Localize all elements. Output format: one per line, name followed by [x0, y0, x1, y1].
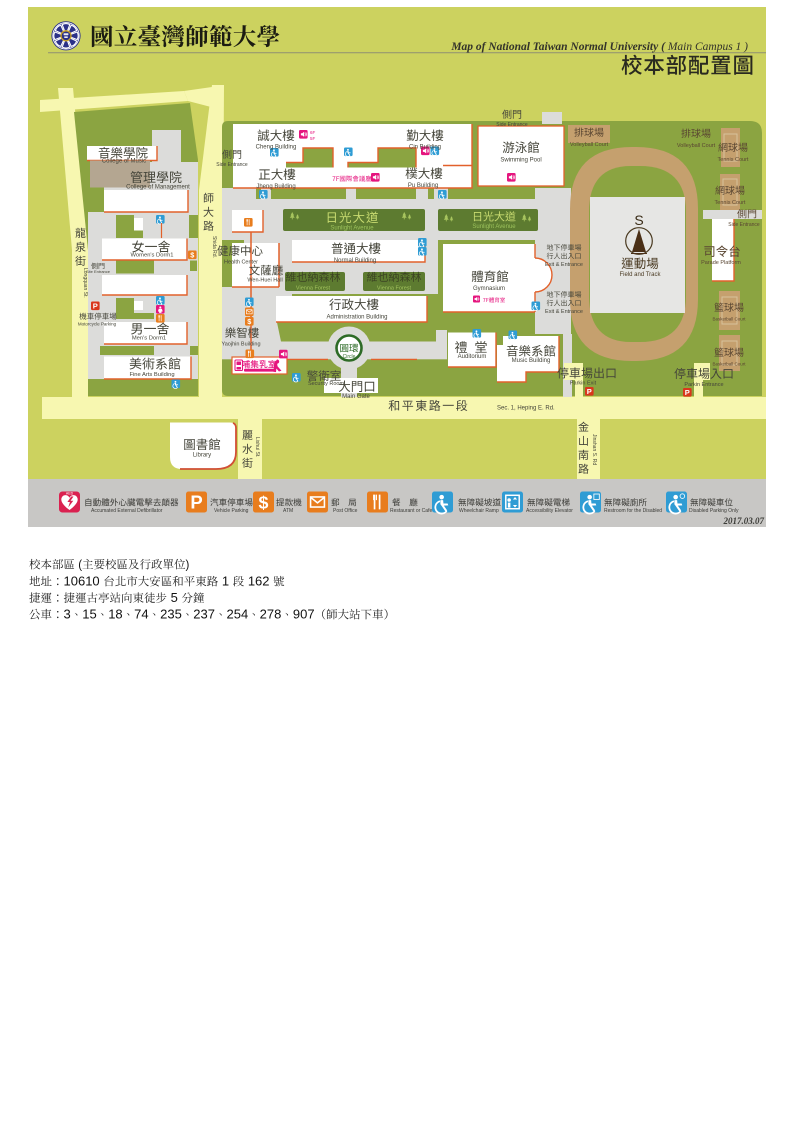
svg-text:): ) — [186, 560, 190, 572]
svg-text:254: 254 — [226, 607, 248, 622]
svg-text:College of Management: College of Management — [126, 185, 190, 191]
svg-text:Lishui St.: Lishui St. — [254, 437, 260, 458]
svg-text:Restroom for the Disabled: Restroom for the Disabled — [604, 508, 662, 514]
svg-text:Sec. 1, Heping E. Rd.: Sec. 1, Heping E. Rd. — [497, 406, 555, 412]
svg-text:Gymnasium: Gymnasium — [473, 286, 505, 292]
svg-text:Jinshan S. Rd: Jinshan S. Rd — [591, 434, 597, 465]
svg-text:Music Building: Music Building — [512, 358, 551, 364]
svg-text:Tennis Court: Tennis Court — [718, 157, 749, 163]
svg-text:Restaurant or Cafe: Restaurant or Cafe — [390, 508, 432, 514]
svg-text:Basketball Court: Basketball Court — [712, 317, 746, 322]
svg-text:Map of National Taiwan Normal: Map of National Taiwan Normal University… — [450, 41, 748, 53]
svg-text:Sunlight Avenue: Sunlight Avenue — [330, 226, 374, 232]
svg-text:Volleyball Court: Volleyball Court — [570, 142, 609, 148]
svg-text:Disabled Parking Only: Disabled Parking Only — [689, 508, 739, 514]
svg-text:5F: 5F — [310, 136, 316, 141]
svg-text:AED: AED — [66, 492, 74, 496]
svg-text:Wheelchair Ramp: Wheelchair Ramp — [459, 508, 499, 514]
svg-text:Post Office: Post Office — [333, 508, 358, 514]
svg-text:Security Room: Security Room — [308, 381, 344, 387]
svg-text:Exit & Entrance: Exit & Entrance — [545, 309, 583, 315]
svg-text:Circle: Circle — [343, 354, 356, 360]
svg-text:Women's Dorm1: Women's Dorm1 — [131, 253, 174, 259]
svg-text:5: 5 — [171, 590, 178, 605]
svg-text:2017.03.07: 2017.03.07 — [723, 516, 765, 526]
svg-text:Pu Building: Pu Building — [408, 183, 438, 189]
svg-text:Shida Rd.: Shida Rd. — [211, 236, 217, 258]
svg-text:Men's Dorm1: Men's Dorm1 — [132, 336, 166, 342]
svg-text:College of Music: College of Music — [102, 159, 146, 165]
svg-text:Parkin Entrance: Parkin Entrance — [684, 382, 723, 388]
svg-text:Sunlight Avenue: Sunlight Avenue — [472, 224, 516, 230]
svg-text:Auditorium: Auditorium — [458, 354, 487, 360]
svg-text:P: P — [685, 388, 690, 397]
svg-text:Accumated External Defibrillat: Accumated External Defibrillator — [91, 508, 163, 514]
svg-text:278: 278 — [260, 607, 282, 622]
svg-text:Parade Platform: Parade Platform — [701, 260, 741, 266]
svg-text:Basketball Court: Basketball Court — [712, 362, 746, 367]
svg-text:Side Entrance: Side Entrance — [496, 122, 528, 128]
svg-text:Motorcycle Parking: Motorcycle Parking — [78, 322, 117, 327]
svg-text:Fine Arts Building: Fine Arts Building — [129, 372, 174, 378]
svg-text:907: 907 — [293, 607, 315, 622]
svg-text:P: P — [587, 387, 592, 396]
svg-text:Library: Library — [193, 453, 211, 459]
svg-text:15: 15 — [82, 607, 96, 622]
svg-text:Volleyball Court: Volleyball Court — [677, 143, 716, 149]
svg-text:Main Gate: Main Gate — [342, 394, 370, 400]
svg-text:ATM: ATM — [283, 508, 293, 514]
svg-text:Field and Track: Field and Track — [619, 272, 661, 278]
svg-text:Yaojhin Building: Yaojhin Building — [221, 342, 260, 348]
svg-text:1: 1 — [222, 574, 229, 589]
svg-text:Jheng Building: Jheng Building — [256, 184, 295, 190]
svg-text:Vehicle Parking: Vehicle Parking — [214, 508, 249, 514]
svg-text:$: $ — [247, 317, 251, 326]
svg-text:Exit & Entrance: Exit & Entrance — [545, 262, 583, 268]
svg-text:Tennis Court: Tennis Court — [715, 200, 746, 206]
svg-text:237: 237 — [193, 607, 215, 622]
svg-text:S: S — [634, 212, 643, 228]
svg-text:10610: 10610 — [64, 574, 100, 589]
svg-text:Vienna Forest: Vienna Forest — [296, 286, 331, 292]
svg-text:18: 18 — [108, 607, 122, 622]
svg-text:Site Entrance: Site Entrance — [86, 269, 111, 274]
svg-text:6F: 6F — [310, 130, 316, 135]
svg-text:Side Entrance: Side Entrance — [216, 162, 248, 168]
svg-text:Normal Building: Normal Building — [334, 258, 376, 264]
svg-text:235: 235 — [160, 607, 182, 622]
svg-text:3: 3 — [64, 607, 71, 622]
svg-text:P: P — [190, 492, 202, 513]
svg-text:(: ( — [78, 560, 82, 572]
svg-text:Swimming Pool: Swimming Pool — [500, 158, 541, 164]
svg-text:Cin Building: Cin Building — [409, 145, 441, 151]
svg-text:P: P — [93, 302, 98, 311]
svg-text:Parkin Exit: Parkin Exit — [570, 380, 597, 386]
svg-text:$: $ — [190, 250, 194, 259]
svg-text:Health Center: Health Center — [224, 260, 258, 266]
svg-text:162: 162 — [248, 574, 270, 589]
svg-text:Accessibility Elevator: Accessibility Elevator — [526, 508, 573, 514]
svg-text:Wen-Huei Hall: Wen-Huei Hall — [247, 278, 282, 284]
svg-text:74: 74 — [134, 607, 148, 622]
svg-text:Vienna Forest: Vienna Forest — [377, 286, 412, 292]
svg-text:Cheng Building: Cheng Building — [256, 145, 297, 151]
svg-text:Side Entrance: Side Entrance — [728, 222, 760, 228]
svg-text:$: $ — [259, 492, 269, 512]
svg-text:Administration Building: Administration Building — [326, 315, 387, 321]
